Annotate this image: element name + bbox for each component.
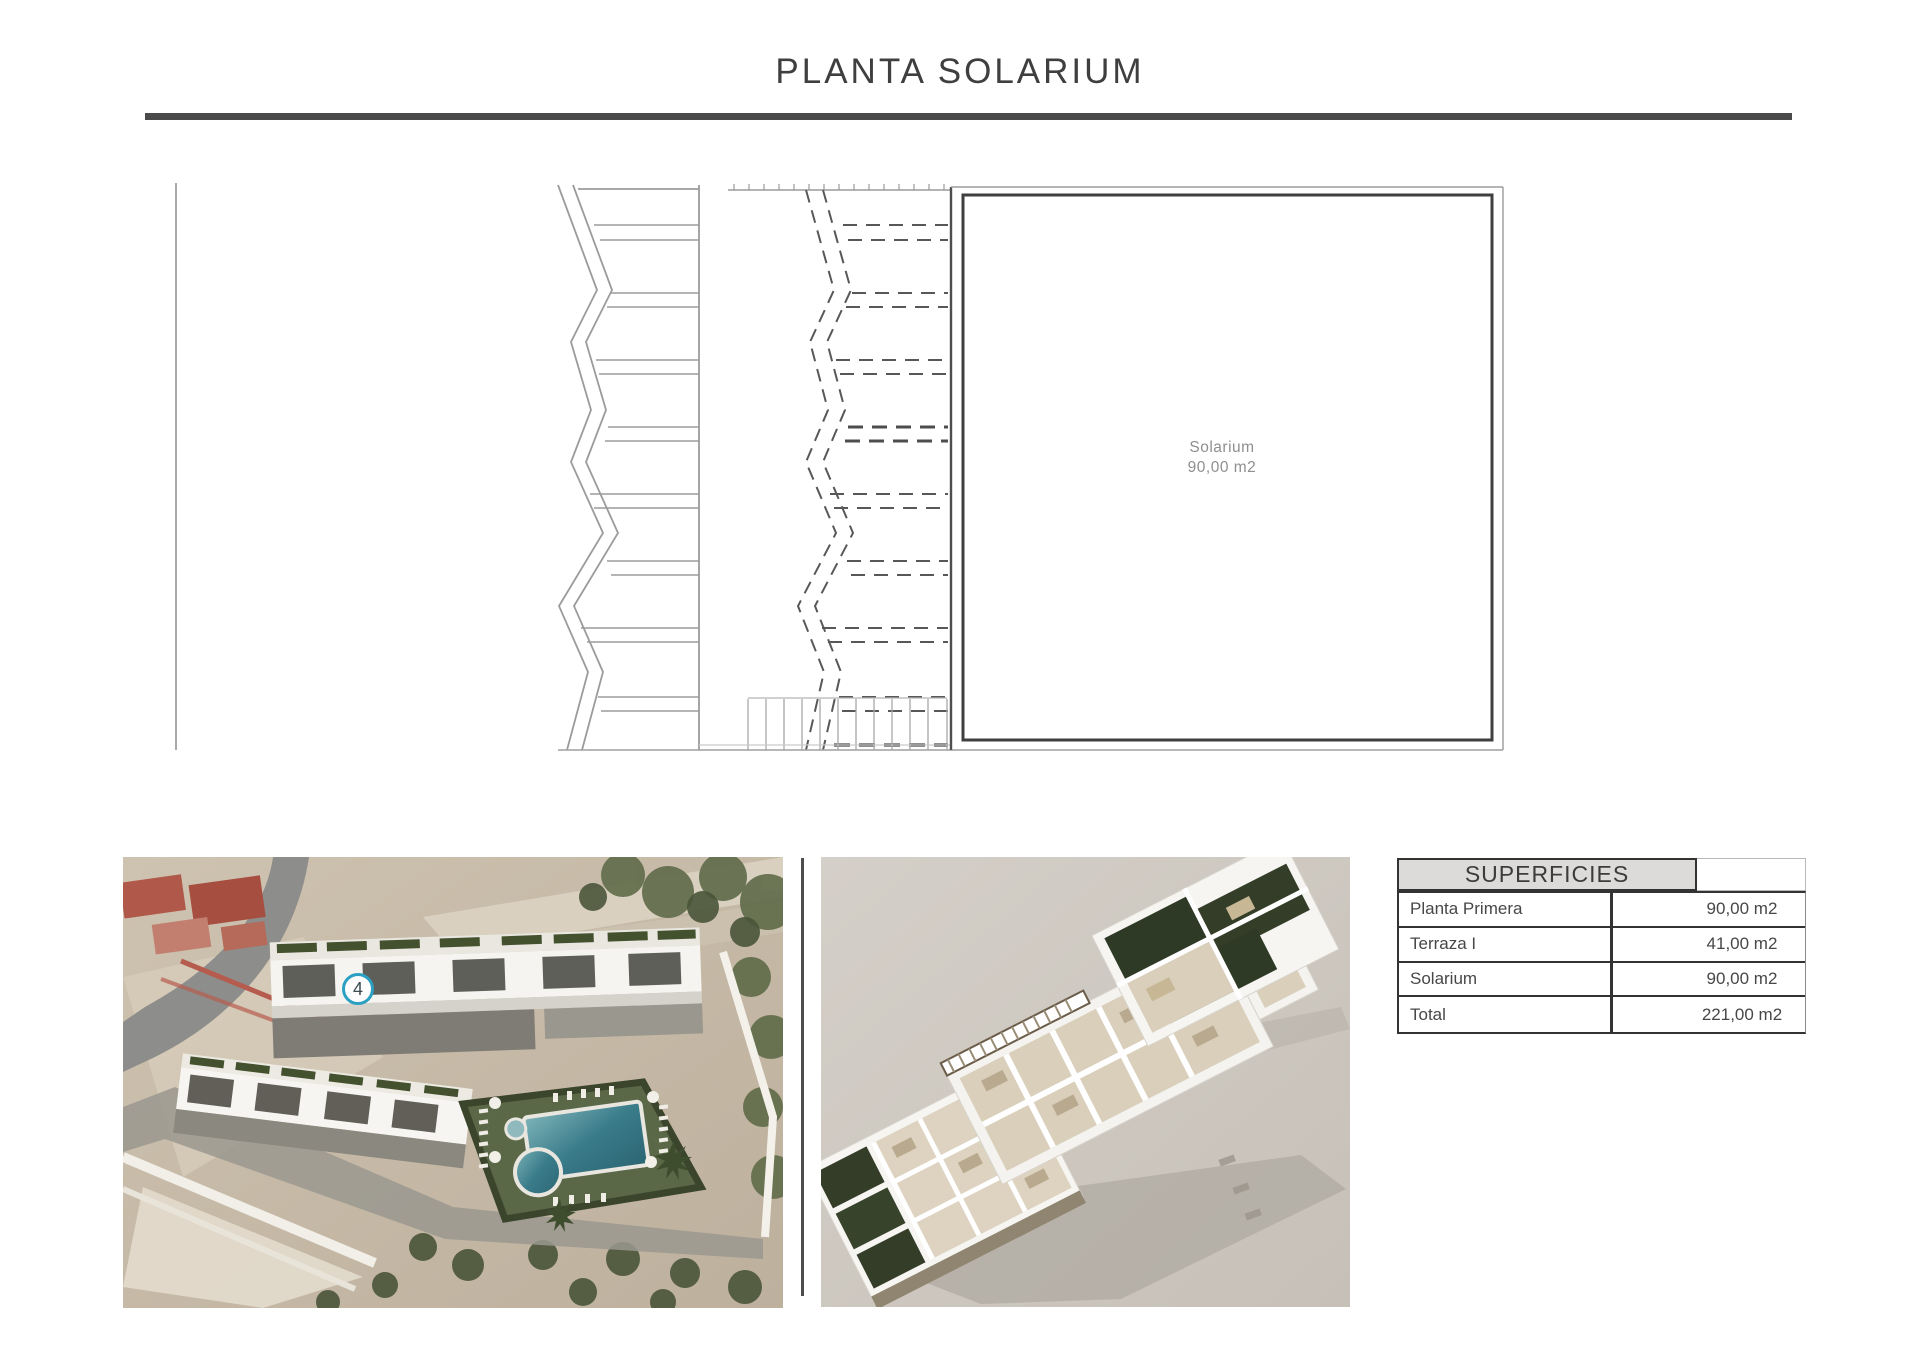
superficies-table: Planta Primera 90,00 m2 Terraza I 41,00 … [1397,891,1806,1034]
plan-sheet-page: PLANTA SOLARIUM [0,0,1920,1357]
table-row: Terraza I 41,00 m2 [1399,928,1805,963]
row-label: Total [1399,997,1613,1032]
row-label: Planta Primera [1399,893,1613,926]
aerial-render-graphic [123,857,783,1308]
row-label: Solarium [1399,963,1613,996]
row-value: 90,00 m2 [1613,893,1805,926]
row-label: Terraza I [1399,928,1613,961]
room-area-label: 90,00 m2 [1188,459,1257,476]
table-row: Solarium 90,00 m2 [1399,963,1805,998]
isometric-floorplan-render [821,857,1350,1307]
row-value: 90,00 m2 [1613,963,1805,996]
isometric-render-graphic [821,857,1350,1307]
row-value: 41,00 m2 [1613,928,1805,961]
superficies-table-header: SUPERFICIES [1397,858,1697,891]
unit-number-badge: 4 [342,973,374,1005]
room-label: Solarium [1189,439,1254,456]
table-row: Total 221,00 m2 [1399,997,1805,1032]
table-row: Planta Primera 90,00 m2 [1399,893,1805,928]
image-divider-line [801,858,804,1296]
solarium-floor-plan-drawing: Solarium 90,00 m2 [0,0,1920,790]
aerial-site-render [123,857,783,1308]
superficies-table-header-extension [1697,858,1806,891]
row-value: 221,00 m2 [1613,997,1805,1032]
